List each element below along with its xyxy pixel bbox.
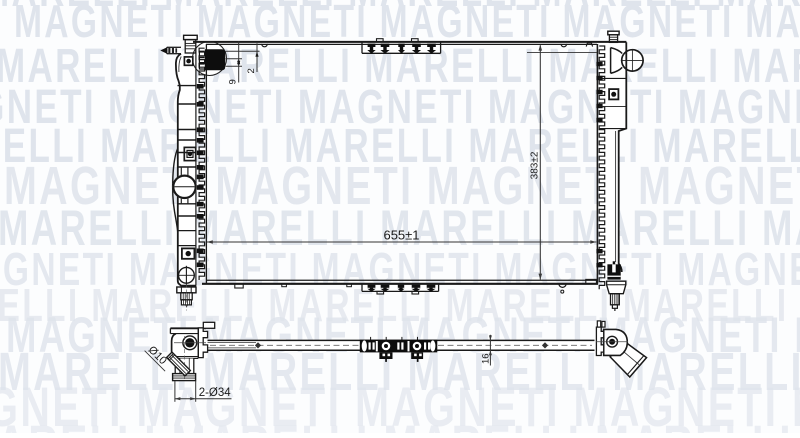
svg-text:383±2: 383±2 (530, 151, 541, 179)
svg-text:9: 9 (227, 79, 238, 84)
svg-text:16: 16 (481, 353, 492, 364)
svg-text:2-Ø34: 2-Ø34 (199, 387, 232, 399)
svg-text:2: 2 (246, 68, 257, 73)
svg-text:MARELLI MARELLI MARELLI MARELL: MARELLI MARELLI MARELLI MARELLI MARELLI … (0, 415, 800, 433)
svg-text:655±1: 655±1 (383, 228, 419, 243)
